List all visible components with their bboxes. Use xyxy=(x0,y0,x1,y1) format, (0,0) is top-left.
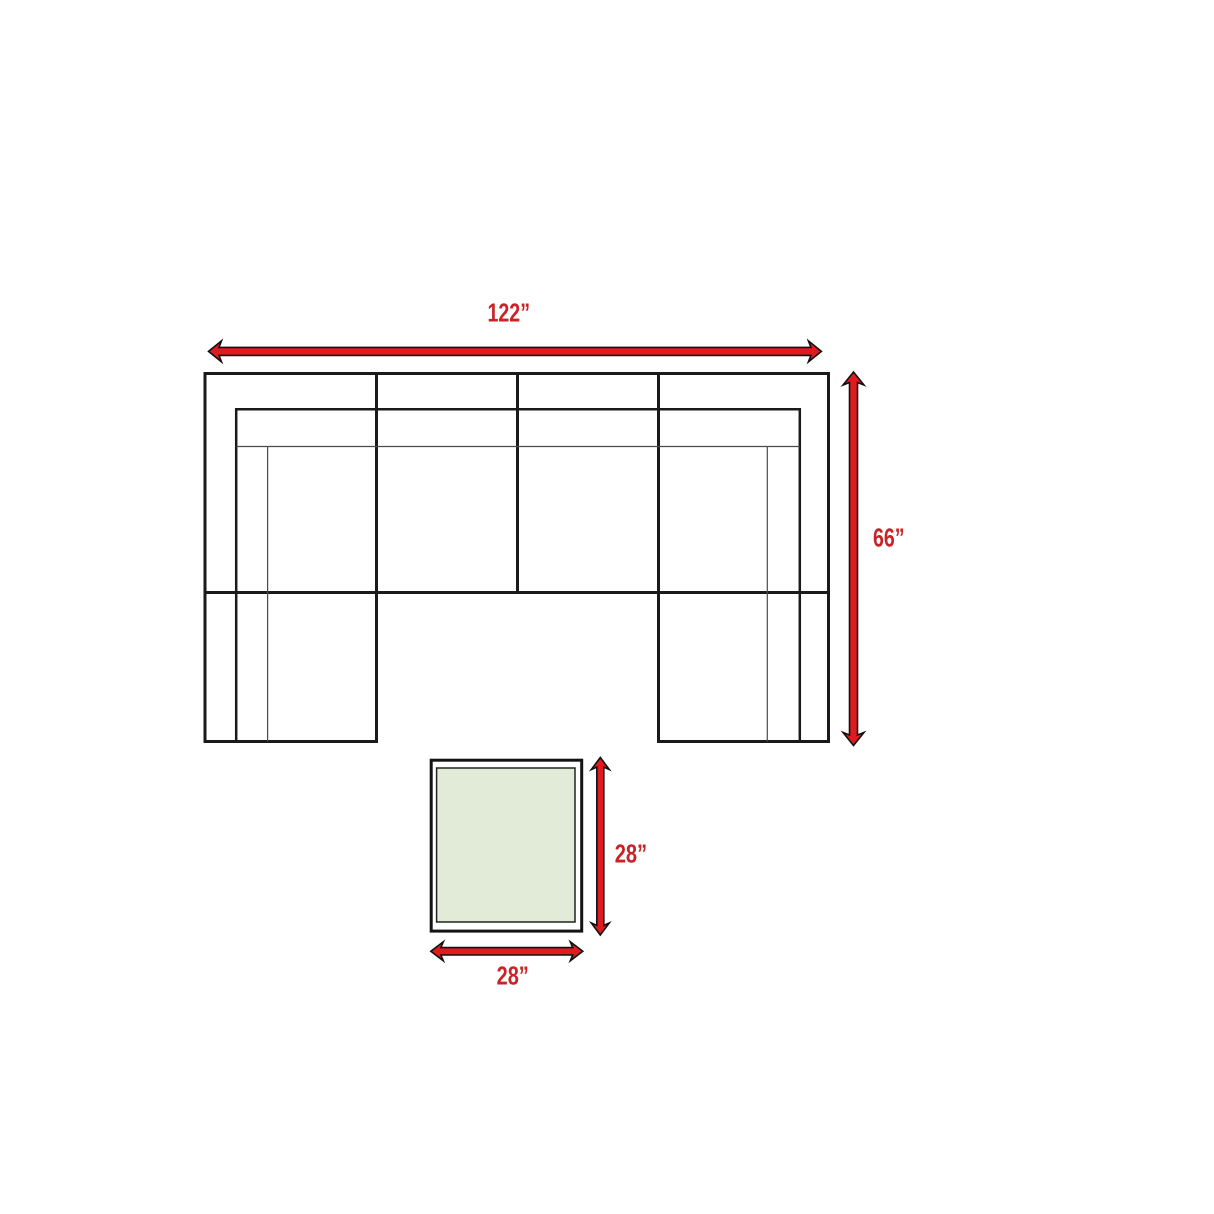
svg-text:122”: 122” xyxy=(488,297,531,327)
svg-text:66”: 66” xyxy=(873,522,905,552)
svg-text:28”: 28” xyxy=(615,839,647,869)
svg-text:28”: 28” xyxy=(497,960,529,990)
